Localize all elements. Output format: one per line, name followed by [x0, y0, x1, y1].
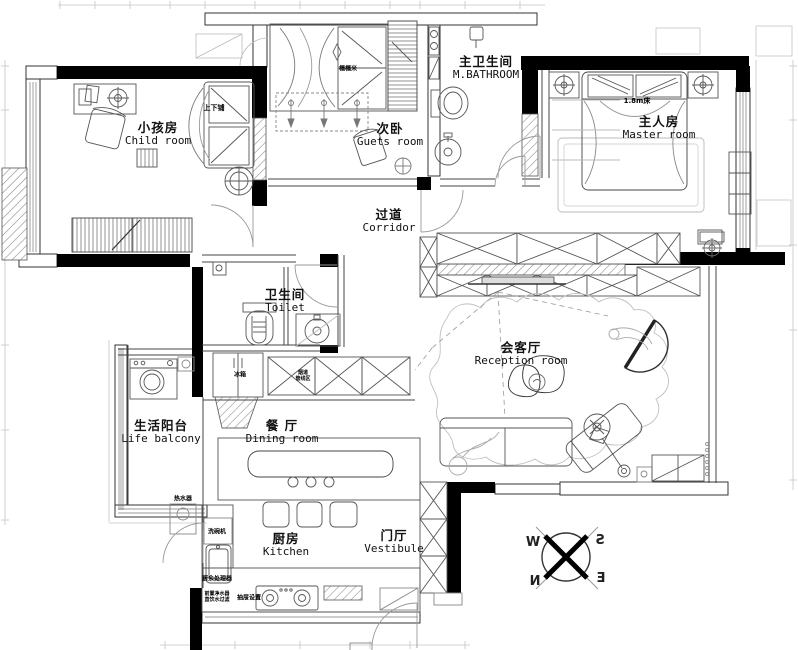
master-bed [582, 72, 687, 190]
kitchen-sink [206, 545, 231, 583]
dishwasher-box [204, 518, 232, 544]
dining-table [248, 451, 393, 477]
reception-furniture [430, 293, 709, 482]
wardrobe-dashed [276, 93, 368, 131]
compass-e: E [597, 571, 606, 586]
stool [297, 502, 322, 527]
child-room-furniture [72, 82, 254, 252]
person-figure [449, 432, 499, 475]
compass-s: S [595, 533, 604, 548]
master-room-furniture [549, 72, 751, 244]
guest-chair [352, 126, 387, 166]
washing-machine [130, 359, 177, 399]
tatami-bed [270, 24, 388, 111]
shower-head-icon [470, 27, 483, 40]
doors [163, 136, 540, 648]
person-figure-2 [609, 328, 652, 350]
bunk-bed [204, 82, 254, 168]
compass-rose: W S N E [526, 527, 606, 589]
desk-chair [85, 105, 127, 150]
compass-n: N [530, 574, 541, 589]
vestibule-fixtures [350, 482, 462, 650]
coffee-table [508, 365, 540, 397]
sight-lines [415, 292, 608, 418]
walls-thin [118, 70, 716, 588]
stool [263, 502, 289, 527]
guest-room-furniture [270, 21, 417, 174]
rug [558, 138, 704, 212]
rug-organic [430, 293, 669, 465]
sofa [440, 418, 572, 466]
louver-cabinet [388, 21, 417, 111]
wc-bowl [246, 311, 273, 345]
walls-solid [57, 56, 785, 650]
kitchen-dining-furniture [202, 353, 420, 612]
compass-w: W [526, 535, 540, 550]
floorplan-canvas: W S N E 小孩房 Child room 次卧 Guets room 主卫生… [0, 0, 798, 650]
stool [330, 502, 357, 527]
curtain-dashes [706, 443, 709, 476]
floorplan-drawing: W S N E [0, 0, 798, 650]
